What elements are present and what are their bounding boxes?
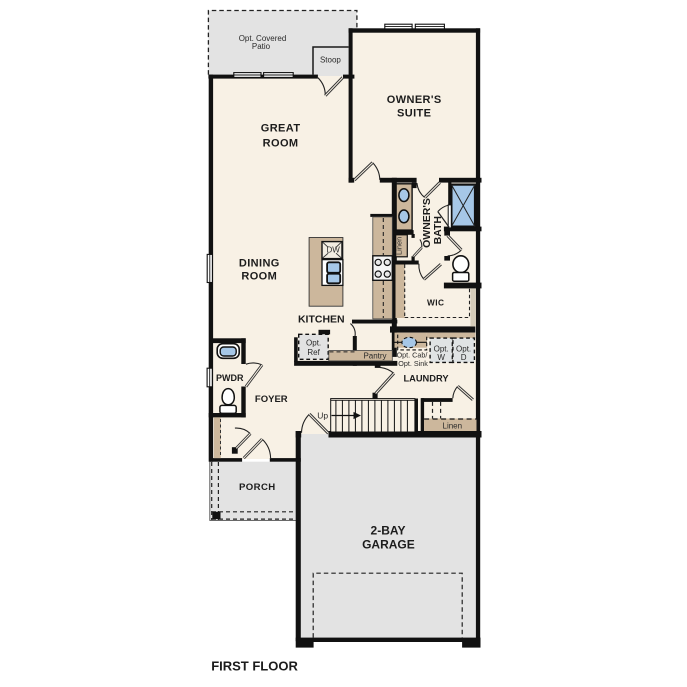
svg-text:BATH: BATH <box>432 216 444 244</box>
svg-text:Linen: Linen <box>443 421 463 430</box>
svg-text:Pantry: Pantry <box>363 352 386 361</box>
svg-text:LAUNDRY: LAUNDRY <box>403 373 449 383</box>
svg-text:W: W <box>437 353 445 362</box>
svg-text:Patio: Patio <box>252 42 271 51</box>
svg-text:ROOM: ROOM <box>241 271 277 283</box>
svg-text:Ref: Ref <box>307 348 320 357</box>
svg-text:GARAGE: GARAGE <box>362 537 415 551</box>
svg-text:DW: DW <box>327 245 341 254</box>
svg-text:ROOM: ROOM <box>263 138 299 150</box>
svg-text:Stoop: Stoop <box>320 56 341 65</box>
svg-text:Opt.: Opt. <box>306 338 321 347</box>
svg-text:FIRST FLOOR: FIRST FLOOR <box>211 658 298 673</box>
svg-text:Linen: Linen <box>395 237 404 255</box>
svg-text:GREAT: GREAT <box>261 123 301 135</box>
svg-text:D: D <box>461 353 467 362</box>
svg-text:SUITE: SUITE <box>397 107 431 119</box>
svg-text:2-BAY: 2-BAY <box>371 523 406 537</box>
svg-text:PORCH: PORCH <box>239 482 276 493</box>
svg-text:Up: Up <box>317 411 328 421</box>
svg-text:Opt. Sink: Opt. Sink <box>398 359 428 368</box>
svg-text:PWDR: PWDR <box>216 373 244 383</box>
svg-text:DINING: DINING <box>239 258 280 270</box>
svg-text:WIC: WIC <box>427 297 444 307</box>
svg-text:OWNER'S: OWNER'S <box>387 94 442 106</box>
svg-text:KITCHEN: KITCHEN <box>298 314 345 326</box>
svg-text:FOYER: FOYER <box>255 394 288 405</box>
